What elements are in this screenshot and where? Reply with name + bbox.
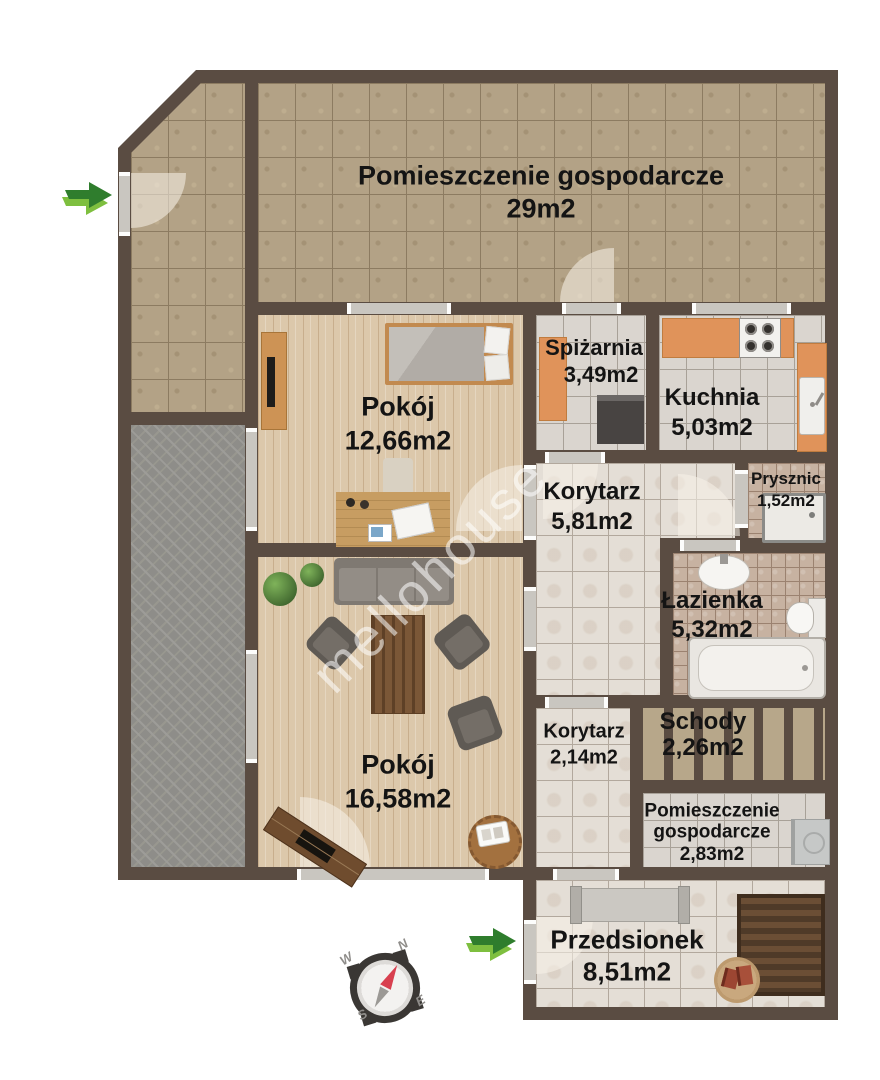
- room-label-hall-small-name: Korytarz: [543, 721, 624, 744]
- room-label-stairs-area: 2,26m2: [662, 734, 743, 762]
- floor-utility-top: [258, 83, 825, 302]
- window-kitchen-top: [692, 303, 791, 314]
- shoes: [736, 965, 753, 986]
- bed-mattress: [389, 327, 484, 381]
- plant-large: [263, 572, 297, 606]
- room-label-bedroom-area: 12,66m2: [345, 426, 452, 457]
- room-label-pantry-name: Spiżarnia: [545, 335, 643, 361]
- room-label-stairs-name: Schody: [660, 708, 747, 736]
- room-label-hall-main-area: 5,81m2: [551, 508, 632, 536]
- window-living-terrace: [246, 650, 257, 763]
- desk-photo: [368, 524, 392, 542]
- bed-pillow: [484, 354, 510, 381]
- door-vestibule-entrance: [524, 920, 536, 984]
- tv-screen: [267, 357, 275, 407]
- room-label-hall-small-area: 2,14m2: [550, 747, 618, 770]
- room-label-living-area: 16,58m2: [345, 784, 452, 815]
- desk-bottle: [346, 498, 355, 507]
- tv-cabinet: [261, 332, 287, 430]
- room-label-utility-top-area: 29m2: [506, 194, 575, 225]
- room-label-kitchen-name: Kuchnia: [665, 384, 760, 412]
- kitchen-sink: [799, 377, 825, 435]
- room-label-hall-main-name: Korytarz: [543, 478, 640, 506]
- floor-terrace: [131, 425, 245, 867]
- room-label-vestibule-area: 8,51m2: [583, 957, 671, 988]
- door-bathroom: [680, 540, 740, 551]
- door-entrance-left: [119, 172, 130, 236]
- window-bedroom-top: [347, 303, 451, 314]
- bench: [570, 886, 690, 922]
- room-label-kitchen-area: 5,03m2: [671, 414, 752, 442]
- door-shower: [735, 470, 748, 528]
- room-label-utility-small-name: Pomieszczenie gospodarcze: [627, 801, 797, 844]
- room-label-bedroom-name: Pokój: [361, 392, 435, 423]
- stove: [739, 318, 781, 358]
- door-hall-vestibule: [553, 869, 619, 880]
- room-label-vestibule-name: Przedsionek: [550, 925, 703, 956]
- door-hall-small: [545, 697, 608, 708]
- entrance-arrow-icon: [466, 924, 518, 962]
- window-bedroom-terrace: [246, 428, 257, 531]
- room-label-shower-area: 1,52m2: [757, 491, 815, 511]
- entrance-arrow-icon: [62, 178, 114, 216]
- room-label-utility-top-name: Pomieszczenie gospodarcze: [358, 161, 724, 192]
- room-label-bathroom-area: 5,32m2: [671, 616, 752, 644]
- bathroom-sink: [698, 555, 750, 590]
- door-utility-pantry: [562, 303, 621, 314]
- toilet: [786, 596, 826, 640]
- desk-bottle: [360, 500, 369, 509]
- door-pantry-hall: [545, 452, 605, 463]
- compass-rose: N W S E: [330, 925, 445, 1035]
- bathtub: [688, 637, 826, 699]
- room-label-bathroom-name: Łazienka: [661, 587, 762, 615]
- floor-plan: N W S E mellohouse Pomieszczenie gospoda…: [0, 0, 880, 1080]
- room-label-shower-name: Prysznic: [751, 469, 821, 489]
- vestibule-rug: [714, 957, 760, 1003]
- pantry-chest: [597, 395, 644, 444]
- room-label-living-name: Pokój: [361, 750, 435, 781]
- living-rug: [468, 815, 522, 869]
- room-label-pantry-area: 3,49m2: [564, 362, 639, 388]
- room-label-utility-small-area: 2,83m2: [680, 844, 744, 866]
- bed-pillow: [484, 326, 511, 355]
- basket: [475, 820, 510, 847]
- plant-small: [300, 563, 324, 587]
- door-living-hall: [524, 587, 536, 651]
- bed: [385, 323, 513, 385]
